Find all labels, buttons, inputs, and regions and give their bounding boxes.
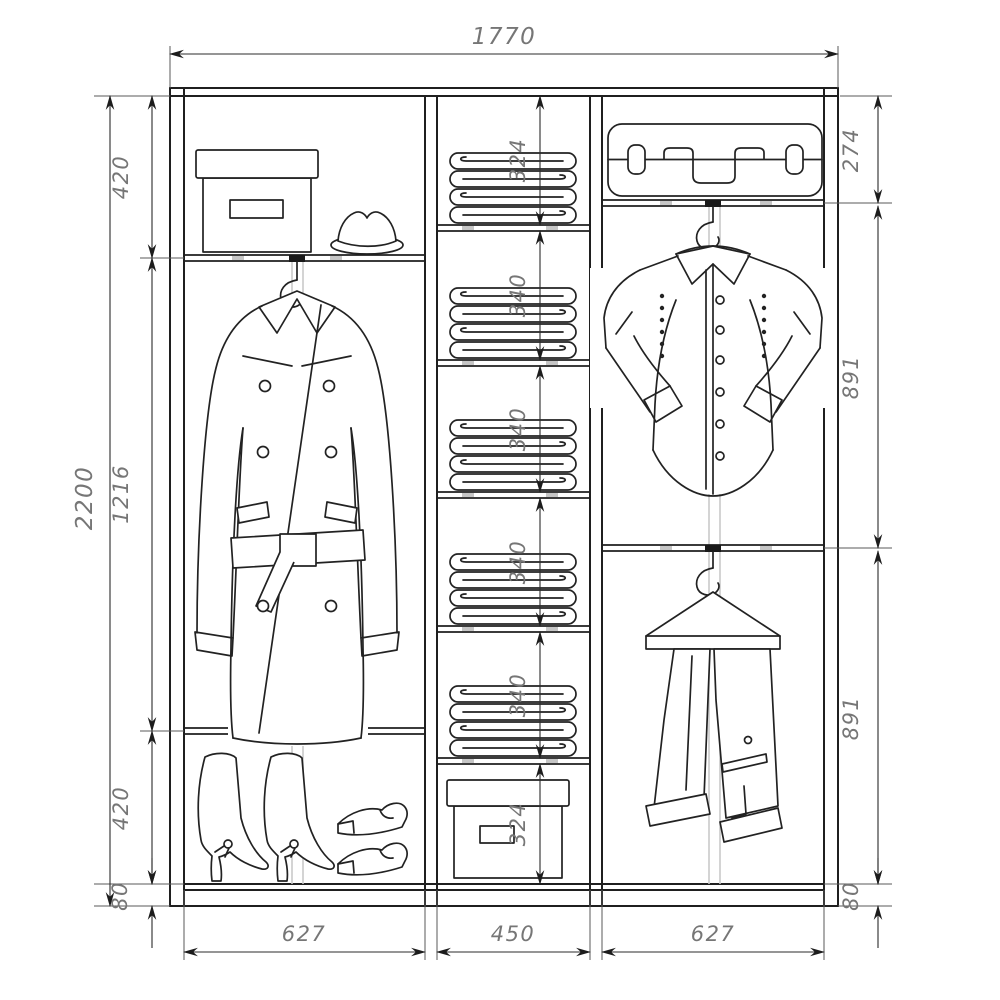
dim-overall-width: 1770 (170, 24, 838, 54)
svg-text:420: 420 (109, 155, 133, 200)
dim-width-middle: 450 (437, 922, 590, 952)
svg-text:274: 274 (839, 128, 863, 173)
hat-icon (331, 212, 403, 254)
svg-text:340: 340 (506, 540, 530, 585)
rod-bracket-icon (705, 545, 721, 552)
dim-right-plinth: 80 (839, 858, 878, 948)
svg-text:891: 891 (839, 355, 863, 400)
svg-text:340: 340 (506, 407, 530, 452)
dim-left-bottom: 420 (109, 731, 152, 884)
dim-width-left: 627 (184, 922, 425, 952)
svg-text:450: 450 (491, 922, 536, 946)
svg-text:80: 80 (108, 881, 132, 911)
coat-icon (192, 255, 402, 746)
dim-left-middle: 1216 (109, 258, 152, 731)
rod-bracket-icon (289, 255, 305, 262)
trousers-icon (646, 545, 782, 842)
dim-left-top: 420 (109, 96, 152, 258)
dim-width-right: 627 (602, 922, 824, 952)
svg-text:1216: 1216 (109, 464, 133, 523)
shirt-icon (590, 200, 836, 496)
dim-right-upper: 891 (839, 206, 878, 548)
dim-right-top: 274 (839, 96, 878, 203)
svg-text:1770: 1770 (472, 24, 537, 50)
svg-text:324: 324 (506, 802, 530, 847)
shoes-icon (338, 803, 407, 875)
dim-right-lower: 891 (839, 551, 878, 884)
drawing-canvas: 1770 2200 420 1216 420 80 324 (0, 0, 1000, 1000)
storage-box-icon (196, 150, 318, 252)
towel-stacks (450, 153, 576, 756)
svg-text:891: 891 (839, 696, 863, 741)
boots-icon (198, 753, 334, 881)
suitcase-icon (608, 124, 822, 196)
svg-text:324: 324 (506, 138, 530, 183)
svg-text:627: 627 (282, 922, 327, 946)
rod-bracket-icon (705, 200, 721, 207)
svg-text:80: 80 (839, 881, 863, 911)
svg-text:627: 627 (691, 922, 736, 946)
dim-left-plinth: 80 (108, 858, 152, 948)
hanger-icon (646, 592, 780, 649)
svg-text:340: 340 (506, 673, 530, 718)
svg-text:2200: 2200 (72, 466, 98, 531)
svg-text:420: 420 (109, 786, 133, 831)
dim-overall-height: 2200 (72, 96, 110, 906)
wardrobe-drawing: 1770 2200 420 1216 420 80 324 (0, 0, 1000, 1000)
svg-text:340: 340 (506, 273, 530, 318)
